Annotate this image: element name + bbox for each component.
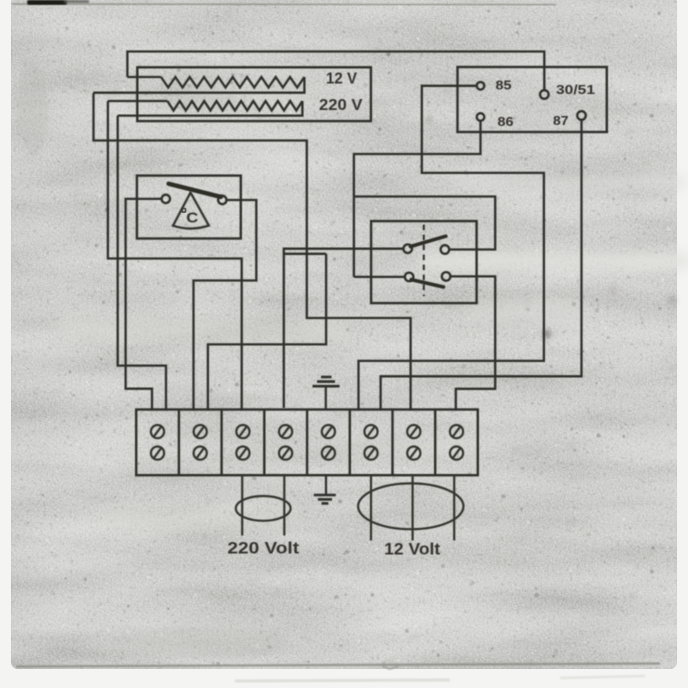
- svg-text:85: 85: [496, 78, 512, 93]
- svg-text:C: C: [186, 210, 198, 227]
- svg-text:87: 87: [553, 113, 569, 128]
- svg-text:220 Volt: 220 Volt: [227, 540, 299, 558]
- svg-text:12 Volt: 12 Volt: [384, 540, 441, 558]
- svg-text:12 V: 12 V: [326, 71, 357, 88]
- svg-text:86: 86: [498, 114, 514, 129]
- svg-text:220 V: 220 V: [319, 97, 363, 114]
- svg-text:30/51: 30/51: [556, 82, 595, 97]
